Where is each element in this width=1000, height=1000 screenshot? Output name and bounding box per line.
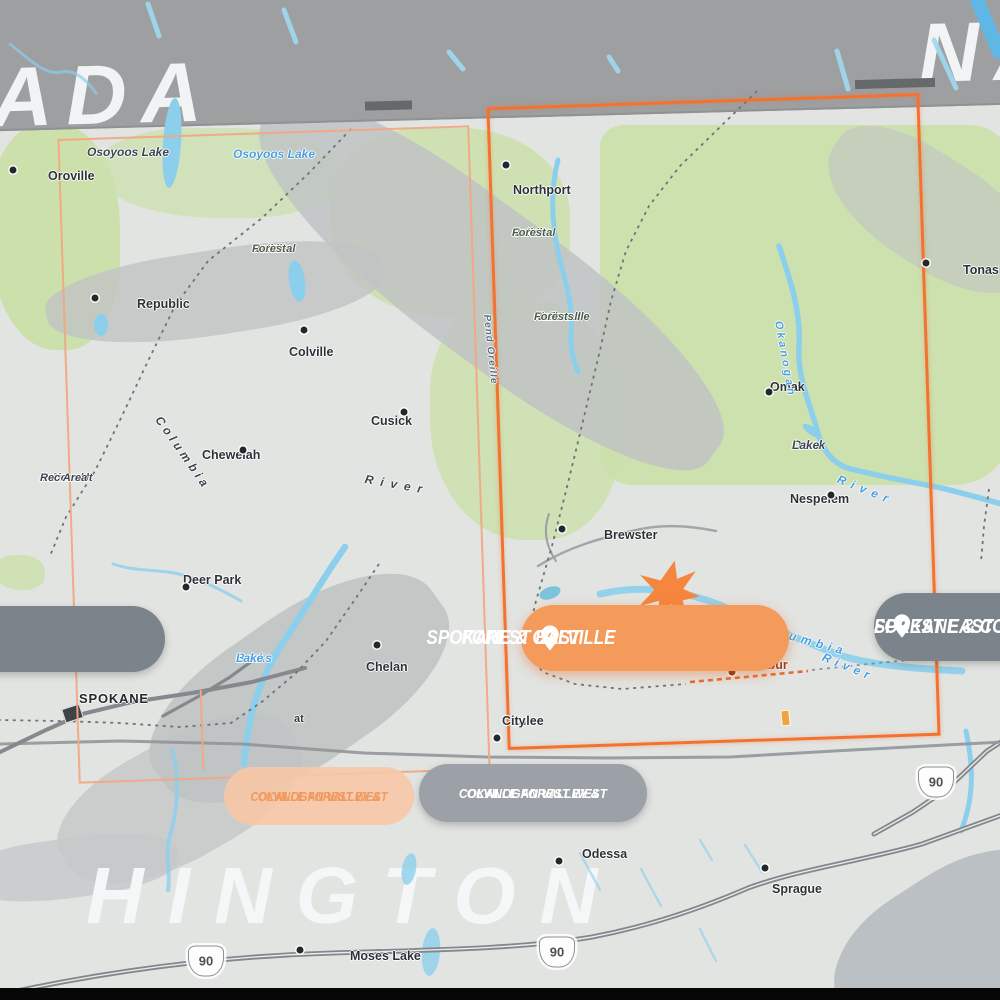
map-badge-okanogan-valley-west[interactable]: OKANOGAN VALLEY & COLVILLE FOREST WEST — [419, 764, 647, 822]
labels-layer: OrovilleNorthportTonasketRepublicColvill… — [0, 0, 1000, 1000]
town-dot — [503, 162, 510, 169]
badge-line2: COLVILLE FOREST WEST — [459, 786, 607, 801]
map-screenshot: HINGTON ADA NA — [0, 0, 1000, 1000]
highway-shield-90: 90 — [539, 937, 575, 968]
town-dot — [762, 865, 769, 872]
town-dot — [923, 260, 930, 267]
town-dot — [828, 492, 835, 499]
town-dot — [494, 735, 501, 742]
town-dot — [301, 327, 308, 334]
map-badge-spokane-colville-forest-east-left-edge[interactable]: SPOKANE & COLVILLE FOREST EAST — [0, 606, 165, 672]
town-dot — [556, 858, 563, 865]
badge-line2: COLVILLE FOREST WEST — [251, 789, 388, 804]
map-badge-spokane-colville-forest-east-right-edge[interactable]: SPOKANE & COLVILLE FOREST EAST — [874, 593, 1000, 661]
town-dot — [297, 947, 304, 954]
town-dot — [92, 295, 99, 302]
badge-line2: FOREST EAST — [874, 617, 993, 638]
highway-shield-90: 90 — [918, 767, 954, 798]
town-dot — [10, 167, 17, 174]
town-dot — [401, 409, 408, 416]
badge-line2: FOREST EAST — [462, 628, 581, 649]
town-dot — [559, 526, 566, 533]
town-dot — [183, 584, 190, 591]
map-badge-spokane-colville-forest-east[interactable]: SPOKANE & COLVILLE FOREST EAST — [521, 605, 789, 671]
town-dot — [240, 447, 247, 454]
bottom-black-bar — [0, 988, 1000, 1000]
town-dot — [374, 642, 381, 649]
town-dot — [766, 389, 773, 396]
highway-shield-90: 90 — [188, 946, 224, 977]
map-badge-okanogan-valley-west-faded[interactable]: OKANOGAN VALLEY & COLVILLE FOREST WEST — [224, 767, 414, 825]
